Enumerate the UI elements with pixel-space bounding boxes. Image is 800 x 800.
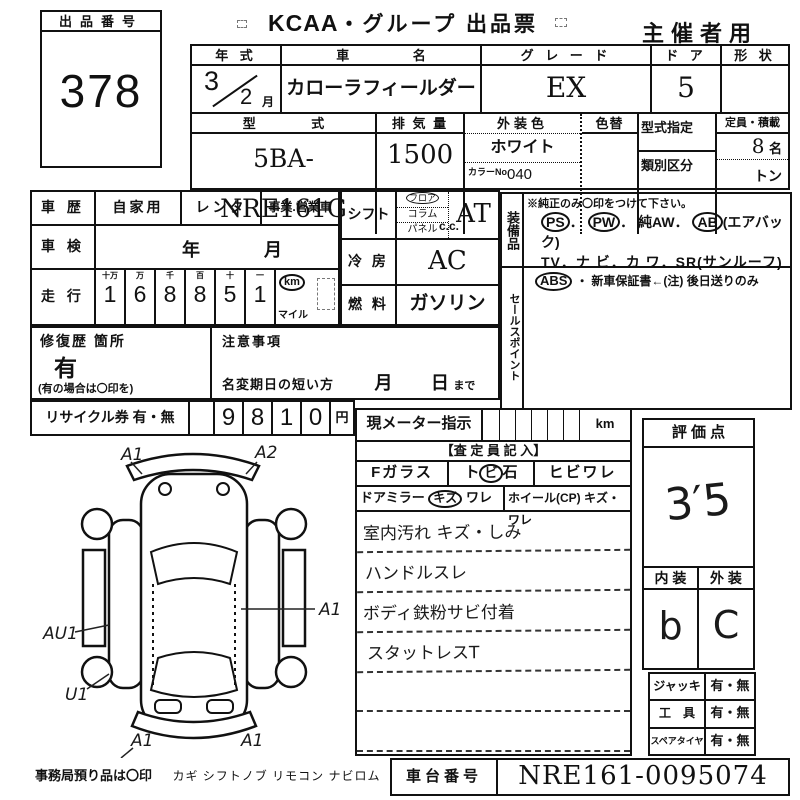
equipment-vertical-label-cell: 装備品 (502, 194, 524, 266)
shift-panel: パネル (397, 223, 448, 238)
left-sill (83, 550, 105, 646)
right-doors (245, 520, 279, 688)
meter-digit-box (563, 410, 579, 440)
mile-unit: マイル (278, 306, 308, 321)
caution-cell: 注意事項 名変期日の短い方 月 日 まで (212, 328, 498, 398)
grade-label: グ レ ー ド (482, 46, 650, 66)
mileage-unit-cell: km マイル (276, 270, 338, 324)
damage-label-rear-wheel: U1 (65, 685, 88, 705)
deposit-items: カギ シフトノブ リモコン ナビロム (172, 769, 380, 783)
mileage-digit-2: 千 8 (156, 270, 186, 324)
front-glass-label: Fガラス (357, 462, 449, 485)
grade-cell: グ レ ー ド EX (482, 46, 652, 112)
salespoint-content (524, 268, 790, 408)
sheet-title: KCAA・グループ 出品票 (268, 8, 538, 38)
auction-logo: KCAA (268, 10, 338, 36)
history-rental: レンタ (182, 192, 262, 224)
fuel-value: ガソリン (397, 286, 498, 324)
aircon-label: 冷 房 (342, 240, 397, 284)
recycle-digit-1: 8 (244, 400, 273, 436)
salespoint-vertical-label-cell: セールスポイント (502, 268, 524, 408)
type-designation-label: 型式指定 (639, 114, 715, 152)
color-number-label: カラーNo. (468, 165, 510, 178)
history-label: 車 歴 (32, 192, 96, 224)
exterior-color-label: 外装色 (465, 114, 580, 134)
exterior-label: 外 装 (699, 568, 753, 588)
evaluation-block: 評 価 点 3′5 内 装 外 装 b C (642, 418, 755, 670)
mileage-digit-5: 一 1 (246, 270, 276, 324)
year-cell: 年 式 3 2 月 (192, 46, 282, 112)
aircon-value: AC (397, 240, 498, 284)
damage-label-front-left: A1 (120, 445, 143, 465)
evaluation-score: 3′5 (638, 443, 759, 572)
car-damage-diagram: A1 A2 A1 AU1 U1 A1 A1 (35, 432, 353, 758)
mirror-kizu-circled: キズ (428, 490, 462, 508)
name-value: カローラフィールダー (282, 66, 480, 112)
exterior-grade: C (699, 590, 753, 668)
damage-label-left-side: AU1 (42, 624, 78, 644)
wheel-damage-cell: ホイール(CP) キズ・ワレ (505, 487, 630, 510)
interior-grade: b (644, 590, 699, 668)
assessor-notes-area: 室内汚れ キズ・しみ ハンドルスレ ボディ鉄粉サビ付着 スタットレスT (357, 512, 630, 754)
shape-value (722, 66, 788, 112)
history-private: 自家用 (96, 192, 182, 224)
tool-label: 工 具 (650, 701, 706, 726)
repair-label: 修復歴 箇所 (32, 328, 210, 351)
year-label: 年 式 (192, 46, 280, 66)
capacity-value-row: 8 名 (717, 134, 788, 160)
mileage-label: 走 行 (32, 270, 96, 324)
assessor-note-line: ボディ鉄粉サビ付着 (357, 591, 630, 633)
history-business: 事業.営業車 (262, 192, 338, 224)
assessor-note-line-empty (357, 672, 630, 712)
damage-label-rear-right: A1 (240, 731, 263, 751)
shift-positions: フロア コラム パネル (397, 192, 449, 238)
recycle-label: リサイクル券 有・無 (30, 400, 190, 436)
equipment-pw: PW (588, 212, 621, 232)
shift-value: AT (449, 192, 498, 238)
lot-number-box: 出品番号 378 (40, 10, 162, 168)
lot-number-value: 378 (42, 64, 160, 118)
model-label: 型 式 (192, 114, 375, 134)
damage-label-rear-left: A1 (130, 731, 153, 751)
capacity-label: 定員・積載 (717, 114, 788, 134)
repair-cell: 修復歴 箇所 有 (有の場合は〇印を) (32, 328, 212, 398)
footer-note: 事務局預り品は〇印 カギ シフトノブ リモコン ナビロム (35, 765, 380, 785)
jack-label: ジャッキ (650, 674, 706, 699)
fuel-label: 燃 料 (342, 286, 397, 324)
equipment-line1: PS． PW． 純AW． AB(エアバック) (541, 212, 787, 252)
rename-deadline-row: 名変期日の短い方 月 日 まで (222, 369, 492, 395)
meter-digit-box (515, 410, 531, 440)
meter-digit-box (531, 410, 547, 440)
name-label: 車 名 (282, 46, 480, 66)
door-label: ド ア (652, 46, 720, 66)
recycle-unit: 円 (331, 400, 355, 436)
equipment-label: 装備品 (502, 194, 522, 266)
shift-block: シフト フロア コラム パネル AT 冷 房 AC 燃 料 ガソリン (340, 190, 500, 326)
vin-row: 車台番号 NRE161-0095074 (390, 758, 790, 796)
crack-label: ヒビワレ (535, 462, 630, 485)
stone-chip-label: トビ石 (449, 462, 535, 485)
assessor-section-title: 【査 定 員 記 入】 (357, 442, 630, 462)
stone-chip-circled: ビ (479, 464, 502, 483)
office-deposit-note: 事務局預り品は〇印 (35, 768, 152, 783)
wheel-front-left (82, 509, 112, 539)
damage-label-front-right: A2 (254, 443, 277, 463)
wheel-front-right (276, 509, 306, 539)
history-block: 車 歴 自家用 レンタ 事業.営業車 車 検 年 月 走 行 十万 1 万 6 … (30, 190, 340, 326)
assessor-note-line-empty (357, 712, 630, 752)
repair-caution-block: 修復歴 箇所 有 (有の場合は〇印を) 注意事項 名変期日の短い方 月 日 まで (30, 326, 500, 400)
fold-mark-left (237, 20, 247, 28)
fold-mark-right (555, 18, 567, 27)
grade-value: EX (482, 66, 650, 112)
equipment-aw: 純AW． (638, 214, 689, 230)
meter-unit: km (579, 410, 630, 440)
lot-number-label: 出品番号 (42, 12, 160, 32)
shift-floor: フロア (397, 192, 448, 208)
jack-value: 有・無 (706, 674, 754, 699)
meter-label: 現メーター指示 (357, 410, 483, 440)
name-cell: 車 名 カローラフィールダー (282, 46, 482, 112)
door-mirror-cell: ドアミラー キズ ワレ (357, 487, 505, 510)
inspection-value: 年 月 (96, 226, 338, 268)
repaint-label: 色替 (582, 114, 637, 134)
accessories-block: ジャッキ 有・無 工 具 有・無 スペアタイヤ 有・無 (648, 672, 756, 756)
assessor-note-line: 室内汚れ キズ・しみ (357, 511, 630, 553)
assessor-note-line: ハンドルスレ (357, 551, 630, 593)
displacement-label: 排 気 量 (377, 114, 463, 134)
equipment-note: ※純正のみ〇印をつけて下さい。 (527, 195, 787, 211)
displacement-value: 1500 (387, 140, 453, 170)
caution-label: 注意事項 (212, 328, 498, 350)
exterior-color-value: ホワイト (465, 134, 580, 162)
sheet-title-rest: ・グループ 出品票 (338, 13, 538, 36)
shape-label: 形 状 (722, 46, 788, 66)
year-value: 3 2 月 (192, 66, 280, 112)
mileage-unit-checkbox (317, 278, 335, 310)
recycle-digit-2: 1 (273, 400, 302, 436)
left-doors (109, 520, 143, 688)
recycle-digit-0: 9 (215, 400, 244, 436)
door-cell: ド ア 5 (652, 46, 722, 112)
repair-note: (有の場合は〇印を) (38, 380, 133, 396)
vehicle-table: 年 式 3 2 月 車 名 カローラフィールダー グ レ ー ド EX ド ア … (190, 44, 790, 190)
repair-value: 有 (32, 349, 210, 383)
salespoint-label: セールスポイント (502, 268, 522, 406)
shift-label: シフト (342, 192, 397, 238)
right-sill (283, 550, 305, 646)
equipment-content: ※純正のみ〇印をつけて下さい。 PS． PW． 純AW． AB(エアバック) T… (524, 194, 790, 266)
spare-tire-value: 有・無 (706, 729, 754, 754)
tool-value: 有・無 (706, 701, 754, 726)
vin-label: 車台番号 (392, 760, 498, 794)
meter-digit-box (499, 410, 515, 440)
door-value: 5 (652, 66, 720, 112)
meter-digit-box (483, 410, 499, 440)
km-unit: km (279, 274, 305, 291)
spare-tire-label: スペアタイヤ (650, 729, 706, 754)
meter-notes-block: 現メーター指示 km 【査 定 員 記 入】 Fガラス トビ石 ヒビワレ ドアミ… (355, 408, 632, 756)
mileage-digit-4: 十 5 (216, 270, 246, 324)
shape-cell: 形 状 (722, 46, 788, 112)
assessor-note-line-empty (357, 752, 630, 754)
mileage-digit-3: 百 8 (186, 270, 216, 324)
assessor-note-line: スタットレスT (357, 631, 630, 673)
equipment-airbag: AB (692, 212, 722, 232)
mileage-digit-1: 万 6 (126, 270, 156, 324)
shift-column: コラム (397, 208, 448, 224)
wheel-rear-right (276, 657, 306, 687)
equipment-ps: PS (541, 212, 570, 232)
recycle-row: リサイクル券 有・無 9 8 1 0 円 (30, 400, 355, 436)
damage-label-right-side: A1 (318, 600, 341, 620)
rename-label: 名変期日の短い方 (222, 377, 334, 392)
recycle-digit-3: 0 (302, 400, 331, 436)
vin-value: NRE161-0095074 (498, 760, 788, 794)
inspection-label: 車 検 (32, 226, 96, 268)
mileage-digit-0: 十万 1 (96, 270, 126, 324)
equipment-block: 装備品 ※純正のみ〇印をつけて下さい。 PS． PW． 純AW． AB(エアバッ… (500, 192, 792, 410)
meter-digit-box (547, 410, 563, 440)
recycle-blank-cell (190, 400, 215, 436)
color-number-value: 040 (507, 166, 532, 183)
